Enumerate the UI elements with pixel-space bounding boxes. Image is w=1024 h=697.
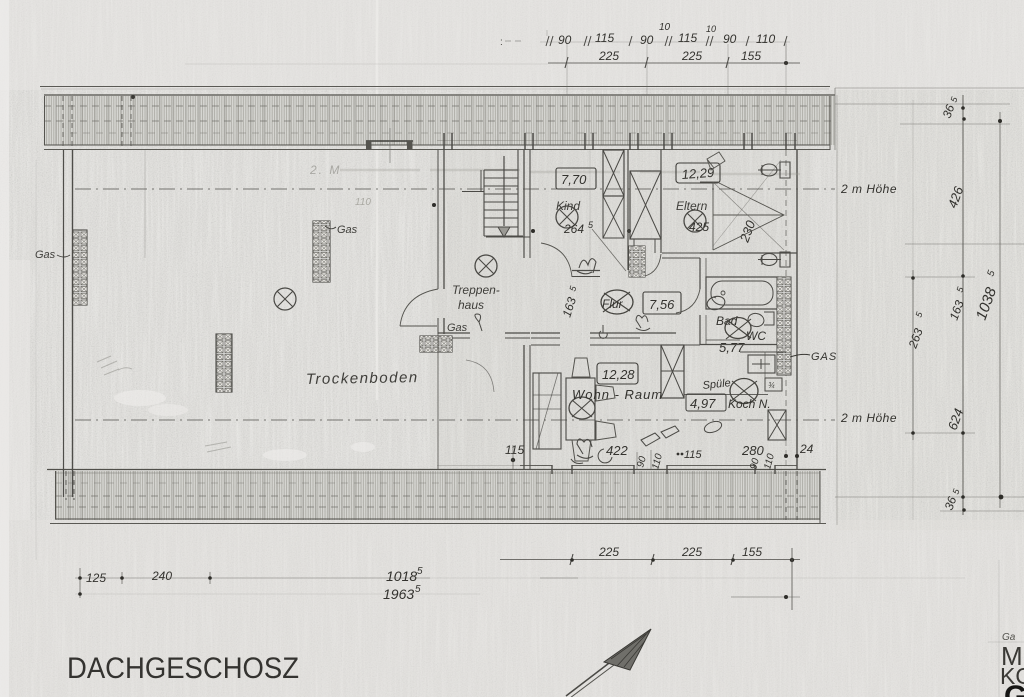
svg-text:115: 115 — [678, 31, 697, 45]
svg-text:1018: 1018 — [386, 568, 417, 584]
svg-text:280: 280 — [741, 443, 764, 458]
svg-text:115: 115 — [595, 31, 614, 45]
svg-text:110: 110 — [355, 197, 371, 208]
svg-text:225: 225 — [598, 545, 619, 559]
svg-text:155: 155 — [741, 49, 761, 63]
svg-text:haus: haus — [458, 298, 484, 312]
svg-text:225: 225 — [681, 49, 702, 63]
svg-text:Flur: Flur — [602, 297, 624, 311]
svg-text::: : — [500, 37, 503, 48]
svg-text:110: 110 — [756, 32, 775, 46]
svg-text:4,97: 4,97 — [690, 396, 716, 411]
svg-text:125: 125 — [86, 571, 106, 585]
svg-text:115: 115 — [505, 443, 524, 457]
svg-text:422: 422 — [606, 443, 628, 458]
svg-text:GAS: GAS — [811, 351, 837, 363]
svg-text:WC: WC — [746, 329, 766, 343]
svg-text:225: 225 — [681, 545, 702, 559]
svg-text:Trockenboden: Trockenboden — [306, 369, 419, 388]
svg-text:5: 5 — [415, 584, 421, 595]
svg-text:Treppen-: Treppen- — [452, 283, 500, 297]
svg-text:264: 264 — [563, 222, 584, 236]
svg-text:Gas: Gas — [35, 249, 56, 261]
svg-text:90: 90 — [558, 33, 572, 47]
svg-text:Gas: Gas — [337, 224, 358, 236]
svg-text:115: 115 — [684, 449, 702, 461]
svg-text:7,56: 7,56 — [649, 297, 675, 312]
svg-text:¾: ¾ — [768, 381, 775, 390]
svg-text:Wohn - Raum: Wohn - Raum — [572, 387, 663, 402]
svg-text:12,28: 12,28 — [602, 367, 635, 382]
svg-text:Koch N.: Koch N. — [728, 397, 771, 411]
svg-text:425: 425 — [689, 220, 709, 234]
svg-text:225: 225 — [598, 49, 619, 63]
svg-text:DACHGESCHOSZ: DACHGESCHOSZ — [67, 652, 299, 685]
svg-text:2. M: 2. M — [309, 163, 341, 177]
svg-text:Gas: Gas — [447, 322, 468, 334]
svg-text:G: G — [1004, 680, 1024, 697]
svg-text:5: 5 — [417, 566, 423, 577]
svg-text:240: 240 — [151, 569, 172, 583]
svg-text:155: 155 — [742, 545, 762, 559]
svg-text:7,70: 7,70 — [561, 172, 587, 187]
svg-text:2 m Höhe: 2 m Höhe — [840, 182, 897, 196]
svg-text:24: 24 — [799, 442, 814, 456]
svg-text:2 m Höhe: 2 m Höhe — [840, 411, 897, 425]
svg-text:10: 10 — [659, 22, 671, 33]
svg-text:1963: 1963 — [383, 586, 414, 602]
svg-text:90: 90 — [723, 32, 737, 46]
svg-text:10: 10 — [706, 24, 716, 34]
svg-text:5,77: 5,77 — [719, 340, 745, 355]
